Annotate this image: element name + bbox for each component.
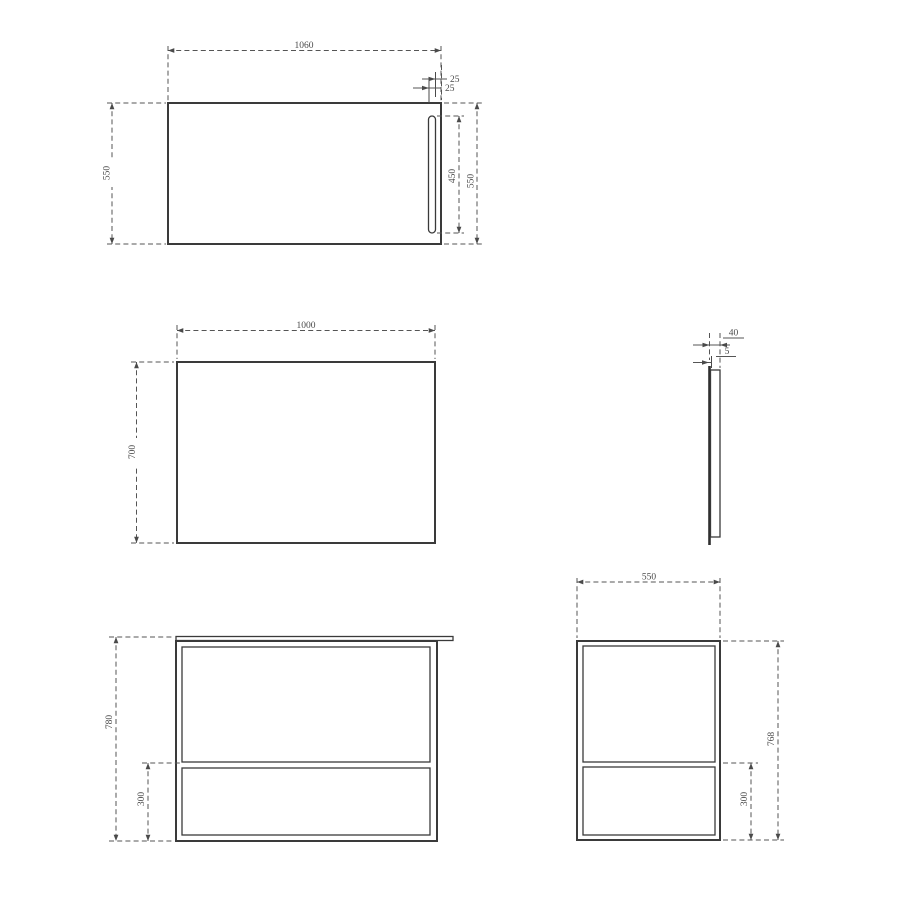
dim-label-vanity-depth: 550 — [642, 573, 657, 583]
arrowhead — [703, 343, 710, 347]
vanity-front-view: 780 300 — [105, 637, 453, 842]
mirror-outline — [168, 103, 441, 244]
dim-label-panel-height: 700 — [128, 445, 138, 460]
vanity-frame-outline — [176, 641, 437, 841]
panel-outline — [177, 362, 435, 543]
dim-label-mirror-height-right: 550 — [467, 174, 477, 189]
upper-opening — [182, 647, 430, 762]
mirror-front-view: 1060 550 550 450 25 25 — [103, 41, 483, 244]
dim-label-vanity-height: 780 — [105, 715, 115, 730]
dim-label-mirror-depth: 40 — [729, 329, 739, 339]
vanity-side-view: 550 768 300 — [577, 573, 784, 841]
arrowhead — [429, 77, 436, 81]
vanity-side-outline — [577, 641, 720, 840]
dim-label-mirror-height-left: 550 — [103, 166, 113, 181]
mirror-side-view: 40 5 — [693, 329, 744, 546]
dim-label-slot-width: 25 — [445, 84, 455, 94]
dim-label-front-shelf-height: 300 — [137, 792, 147, 807]
mirror-led-slot — [429, 116, 436, 233]
drawing-canvas: 1060 550 550 450 25 25 — [0, 0, 900, 900]
arrowhead — [422, 86, 429, 90]
dim-label-side-shelf-height: 300 — [740, 792, 750, 807]
arrowhead — [702, 360, 709, 364]
dim-label-vanity-side-height: 768 — [767, 732, 777, 747]
lower-shelf-opening — [182, 768, 430, 835]
dim-label-glass-thickness: 5 — [725, 347, 730, 357]
mirror-back-frame — [711, 370, 721, 537]
lower-side-opening — [583, 767, 715, 835]
countertop-edge — [176, 637, 453, 641]
dim-label-mirror-width: 1060 — [295, 41, 314, 51]
dim-label-panel-width: 1000 — [297, 321, 316, 331]
panel-front-view: 1000 700 — [128, 321, 435, 543]
upper-side-opening — [583, 646, 715, 762]
dim-label-slot-height: 450 — [448, 169, 458, 184]
technical-drawing-page: 1060 550 550 450 25 25 — [0, 0, 900, 900]
